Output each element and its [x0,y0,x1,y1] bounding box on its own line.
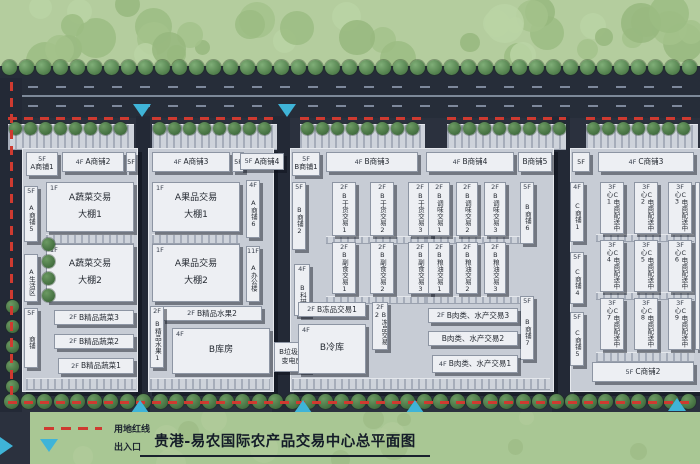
building-sublabel: 大棚2 [184,277,208,286]
floor-label: 2F [435,184,443,191]
building-label: B粮油交易3 [492,251,499,293]
building: 3FC电商配送中心9 [668,298,692,350]
street-tree [342,60,357,75]
plan-title: 贵港-易农国际农产品交易中心总平面图 [140,430,430,457]
parking-tree [662,122,675,135]
building: 3FC电商配送中心8 [634,298,658,350]
parking-tree [168,122,181,135]
floor-label: 3F [642,242,650,249]
building-label: C电商配送中心3 [673,191,687,233]
parking-tree [463,122,476,135]
parking-tree [478,122,491,135]
parking-tree [84,122,97,135]
floor-label: 5F [523,298,531,305]
street-tree [546,60,561,75]
floor-label: 2F [378,184,386,191]
street-tree [104,60,119,75]
parking-tree [301,122,314,135]
street-tree [529,60,544,75]
floor-label: 5F [626,369,634,376]
building: 5FA商铺4 [240,153,284,170]
building-label: A商铺6 [250,199,257,228]
building: 4FB商铺4 [426,152,514,172]
floor-label: 4F [249,182,257,189]
floor-label: 2F [463,244,471,251]
parking-tree [346,122,359,135]
street-tree [359,60,374,75]
building: 2FB干货交易1 [332,182,356,236]
floor-label: 4F [355,159,363,166]
building: 1FA蔬菜交易大棚2 [46,244,134,302]
foliage-blob [73,446,94,464]
building-sliver [695,182,700,350]
building-label: B肉类、水产交易2 [442,335,504,343]
building-label: C电商配送中心9 [673,307,687,349]
building-label: B调味交易3 [492,192,499,234]
floor-label: 2F [378,244,386,251]
building-label: B副食交易1 [341,251,348,293]
floor-label: 1F [156,185,164,192]
building-label: C电商配送中心1 [605,191,619,233]
building: 1FA果品交易大棚2 [152,244,240,302]
floor-label: 4F [176,331,184,338]
building: 2FB精品蔬菜3 [54,310,134,325]
building: 4FC商铺1 [570,182,584,242]
floor-label: 3F [676,300,684,307]
red-boundary-line [152,117,277,120]
red-boundary-line [447,117,566,120]
street-tree [376,60,391,75]
street-tree [580,60,595,75]
building: 2FB干货交易2 [370,182,394,236]
floor-label: 5F [245,158,253,165]
building-label: A生活区 [28,268,35,296]
building-label: C商铺1 [574,202,581,231]
street-tree [189,60,204,75]
floor-label: 2F [71,363,79,370]
floor-label: 4F [174,159,182,166]
building: 4FA商铺6 [246,180,260,238]
floor-label: 2F [491,184,499,191]
street-tree [274,60,289,75]
building-label: B库房 [209,346,233,355]
building-label: A商铺3 [183,158,208,166]
floor-label: 2F [187,310,195,317]
foliage-blob [630,443,647,460]
floor-label: 4F [76,159,84,166]
floor-label: 3F [676,242,684,249]
building: 4FA商铺3 [152,152,230,172]
building: B肉类、水产交易2 [428,331,518,346]
building-label: B商铺6 [524,203,531,232]
building-label: C电商配送中心8 [639,307,653,349]
building-label: B精品蔬菜2 [79,338,119,346]
street-tree [36,60,51,75]
building-label: A商铺5 [28,204,35,233]
courtyard-tree [42,238,55,251]
building: 4FC商铺3 [598,152,694,172]
parking-tree [647,122,660,135]
building: 1FA果品交易大棚1 [152,182,240,232]
floor-label: 2F [153,308,161,315]
foliage-blob [519,412,534,425]
floor-label: 2F [69,314,77,321]
entrance-arrow-icon [0,437,13,455]
floor-label: 3F [608,300,616,307]
building: 5F [572,152,590,172]
building-label: A果品交易 [175,260,217,269]
building-label: B冻品交易1 [317,306,357,314]
floor-label: 4F [302,327,310,334]
building: 2FB粮油交易2 [456,242,478,294]
building: 3FC电商配送中心7 [600,298,624,350]
building: 2FB调味交易2 [456,182,478,236]
internal-road [552,116,570,412]
building-label: B商铺1 [294,164,317,171]
street-tree [597,60,612,75]
building: 2FB精品蔬菜1 [58,358,134,374]
floor-label: 5F [27,188,35,195]
building-label: B商铺4 [462,158,487,166]
parking-tree [69,122,82,135]
street-tree [19,60,34,75]
building-label: B冷库 [320,344,344,353]
floor-label: 5F [573,254,581,261]
entrance-marker [278,104,296,117]
street-tree [70,60,85,75]
street-tree [478,60,493,75]
courtyard-tree [42,272,55,285]
building-label: B商铺3 [364,158,389,166]
floor-label: 2F [437,312,445,319]
building-label: B冻品交易2 [373,311,387,349]
parking-tree [508,122,521,135]
floor-label: 5F [573,314,581,321]
floor-label: 3F [642,300,650,307]
building-label: B粮油交易1 [436,251,443,293]
building-sublabel: 大棚1 [78,211,102,220]
building-label: A商铺4 [254,158,279,166]
floor-label: 2F [69,338,77,345]
parking-tree [632,122,645,135]
building: 11FA办公楼 [246,246,260,302]
parking-tree [114,122,127,135]
street-tree [2,60,17,75]
building: 4FB冷库 [298,324,366,374]
floor-label: 4F [298,266,306,273]
parking-strip [26,378,136,390]
building-label: A办公楼 [250,264,257,292]
parking-tree [391,122,404,135]
building-label: 5F [127,159,135,166]
building: 4FB商铺3 [326,152,418,172]
floor-label: 2F [340,244,348,251]
courtyard-tree [42,255,55,268]
building: 3FC电商配送中心4 [600,240,624,292]
plan-area: 5FA商铺14FA商铺25F5FA商铺5A生活区5F商铺1FA蔬菜交易大棚11F… [0,0,700,464]
building: 2FB粮油交易1 [428,242,450,294]
parking-tree [376,122,389,135]
street-tree [121,60,136,75]
street-tree [291,60,306,75]
foliage-blob [397,413,411,427]
building: 2FB冻品交易1 [298,302,366,317]
street-tree [614,60,629,75]
red-boundary-line [586,117,696,120]
street-tree [495,60,510,75]
floor-label: 3F [608,242,616,249]
building: 4FA商铺2 [62,152,124,172]
building-label: A果品交易 [175,194,217,203]
parking-strip [150,378,270,390]
building-label: C商铺4 [574,268,581,297]
building: 4FB肉类、水产交易1 [432,355,518,373]
building-label: B精品蔬菜1 [81,362,121,370]
street-tree [87,60,102,75]
building: 2FB调味交易3 [484,182,506,236]
street-tree [682,60,697,75]
floor-label: 4F [439,361,447,368]
building-label: B干货交易1 [341,192,348,234]
building: 5F商铺 [24,308,38,368]
building: 3FC电商配送中心2 [634,182,658,234]
parking-tree [538,122,551,135]
entrance-marker [668,398,686,411]
building-label: B调味交易1 [436,192,443,234]
parking-tree [553,122,566,135]
foliage-blob [508,439,524,455]
red-boundary-line [300,117,425,120]
building-label: B商铺2 [296,206,303,235]
parking-tree [677,122,690,135]
floor-label: 5F [295,184,303,191]
floor-label: 2F [435,244,443,251]
site-plan: 5FA商铺14FA商铺25F5FA商铺5A生活区5F商铺1FA蔬菜交易大棚11F… [0,0,700,464]
floor-label: 2F [463,184,471,191]
parking-tree [617,122,630,135]
floor-label: 2F [416,244,424,251]
street-tree [155,60,170,75]
building-label: 商铺 [28,336,35,349]
floor-label: 2F [340,184,348,191]
building-label: B商铺7 [524,318,531,347]
building-sublabel: 大棚2 [78,277,102,286]
floor-label: 5F [27,310,35,317]
street-tree [53,60,68,75]
building-label: B肉类、水产交易3 [447,312,509,320]
building-label: C商铺3 [638,158,663,166]
building: 5FB商铺6 [520,182,534,244]
building-label: B粮油交易2 [464,251,471,293]
building: 5FC商铺5 [570,312,584,366]
floor-label: 3F [676,184,684,191]
building: 2FB冻品交易2 [372,302,388,350]
red-boundary-line [8,117,134,120]
street-tree [410,60,425,75]
building-label: B副食交易2 [379,251,386,293]
building-label: C电商配送中心2 [639,191,653,233]
parking-tree [331,122,344,135]
floor-label: 2F [376,304,384,311]
street-tree [172,60,187,75]
building: 2FB精品水果1 [150,306,164,368]
parking-strip [292,378,550,390]
street-tree [444,60,459,75]
parking-tree [587,122,600,135]
building: 2FB调味交易1 [428,182,450,236]
red-line-legend-icon [44,427,102,430]
parking-strip [152,234,240,244]
floor-label: 1F [156,247,164,254]
building-label: C电商配送中心6 [673,249,687,291]
red-boundary-line [10,82,13,402]
floor-label: 4F [453,159,461,166]
building-label: B精品水果1 [154,320,161,362]
parking-tree [198,122,211,135]
building: 5FB商铺1 [292,152,320,176]
building-label: 5F [577,159,585,166]
building: A生活区 [24,254,38,302]
building: 5FC商铺2 [592,362,694,382]
parking-tree [39,122,52,135]
building-label: B干货交易3 [417,192,424,234]
building: 4FB库房 [172,328,270,374]
floor-label: 1F [50,185,58,192]
parking-tree [316,122,329,135]
street-tree [223,60,238,75]
building-label: C电商配送中心7 [605,307,619,349]
street-tree [240,60,255,75]
parking-tree [183,122,196,135]
parking-tree [448,122,461,135]
building-label: B肉类、水产交易1 [449,360,511,368]
floor-label: 2F [491,244,499,251]
building-label: A蔬菜交易 [69,194,111,203]
building: 5FA商铺5 [24,186,38,242]
floor-label: 2F [416,184,424,191]
building: 3FC电商配送中心1 [600,182,624,234]
courtyard-tree [42,289,55,302]
parking-tree [258,122,271,135]
building: 3FC电商配送中心3 [668,182,692,234]
street-tree [461,60,476,75]
parking-tree [99,122,112,135]
street-tree [257,60,272,75]
building: 1FA蔬菜交易大棚1 [46,182,134,232]
building: 5FB商铺2 [292,182,306,250]
floor-label: 4F [629,159,637,166]
parking-tree [493,122,506,135]
floor-label: 11F [247,248,259,255]
building-label: B干货交易2 [379,192,386,234]
foliage-blob [363,412,383,429]
parking-strip [426,296,534,304]
building-label: C电商配送中心4 [605,249,619,291]
parking-strip [46,234,134,244]
street-tree [563,60,578,75]
parking-tree [228,122,241,135]
entrance-marker [133,104,151,117]
building: B商铺5 [518,152,552,172]
building-label: C商铺2 [635,368,660,376]
building-label: B商铺5 [523,158,548,166]
building: 2FB副食交易2 [370,242,394,294]
parking-strip [596,352,694,362]
street-tree [138,60,153,75]
floor-label: 2F [307,306,315,313]
street-tree [648,60,663,75]
floor-label: 3F [608,184,616,191]
building-label: C商铺5 [574,329,581,358]
building-label: B精品蔬菜3 [79,314,119,322]
building-label: B精品水果2 [197,310,237,318]
building: 3FC电商配送中心5 [634,240,658,292]
parking-tree [406,122,419,135]
street-tree [308,60,323,75]
street-tree [393,60,408,75]
building: 2FB肉类、水产交易3 [428,308,518,323]
building-label: C电商配送中心5 [639,249,653,291]
building-label: A蔬菜交易 [69,260,111,269]
parking-tree [213,122,226,135]
red-boundary-line [8,401,696,404]
floor-label: 4F [573,184,581,191]
street-tree [427,60,442,75]
building: 2FB粮油交易3 [484,242,506,294]
street-tree [206,60,221,75]
building: 5FC商铺4 [570,252,584,304]
floor-label: 3F [642,184,650,191]
building: 2FB精品水果2 [162,306,262,321]
building-label: B调味交易2 [464,192,471,234]
building-label: B副食交易3 [417,251,424,293]
building: 5FB商铺7 [520,296,534,360]
street-tree [512,60,527,75]
street-tree [325,60,340,75]
parking-tree [523,122,536,135]
parking-tree [24,122,37,135]
parking-tree [153,122,166,135]
legend-entrance-label: 出入口 [114,440,141,453]
entrance-legend-icon [40,439,58,452]
street-tree [665,60,680,75]
building: 5FA商铺1 [26,152,58,176]
parking-tree [54,122,67,135]
building-label: A商铺2 [85,158,110,166]
parking-tree [602,122,615,135]
parking-tree [243,122,256,135]
building: 3FC电商配送中心6 [668,240,692,292]
building-sublabel: 大棚1 [184,211,208,220]
floor-label: 5F [523,184,531,191]
building: 5F [126,152,136,172]
building: 2FB精品蔬菜2 [54,334,134,349]
parking-tree [361,122,374,135]
building: 2FB副食交易1 [332,242,356,294]
building-label: A商铺1 [30,164,53,171]
street-tree [631,60,646,75]
